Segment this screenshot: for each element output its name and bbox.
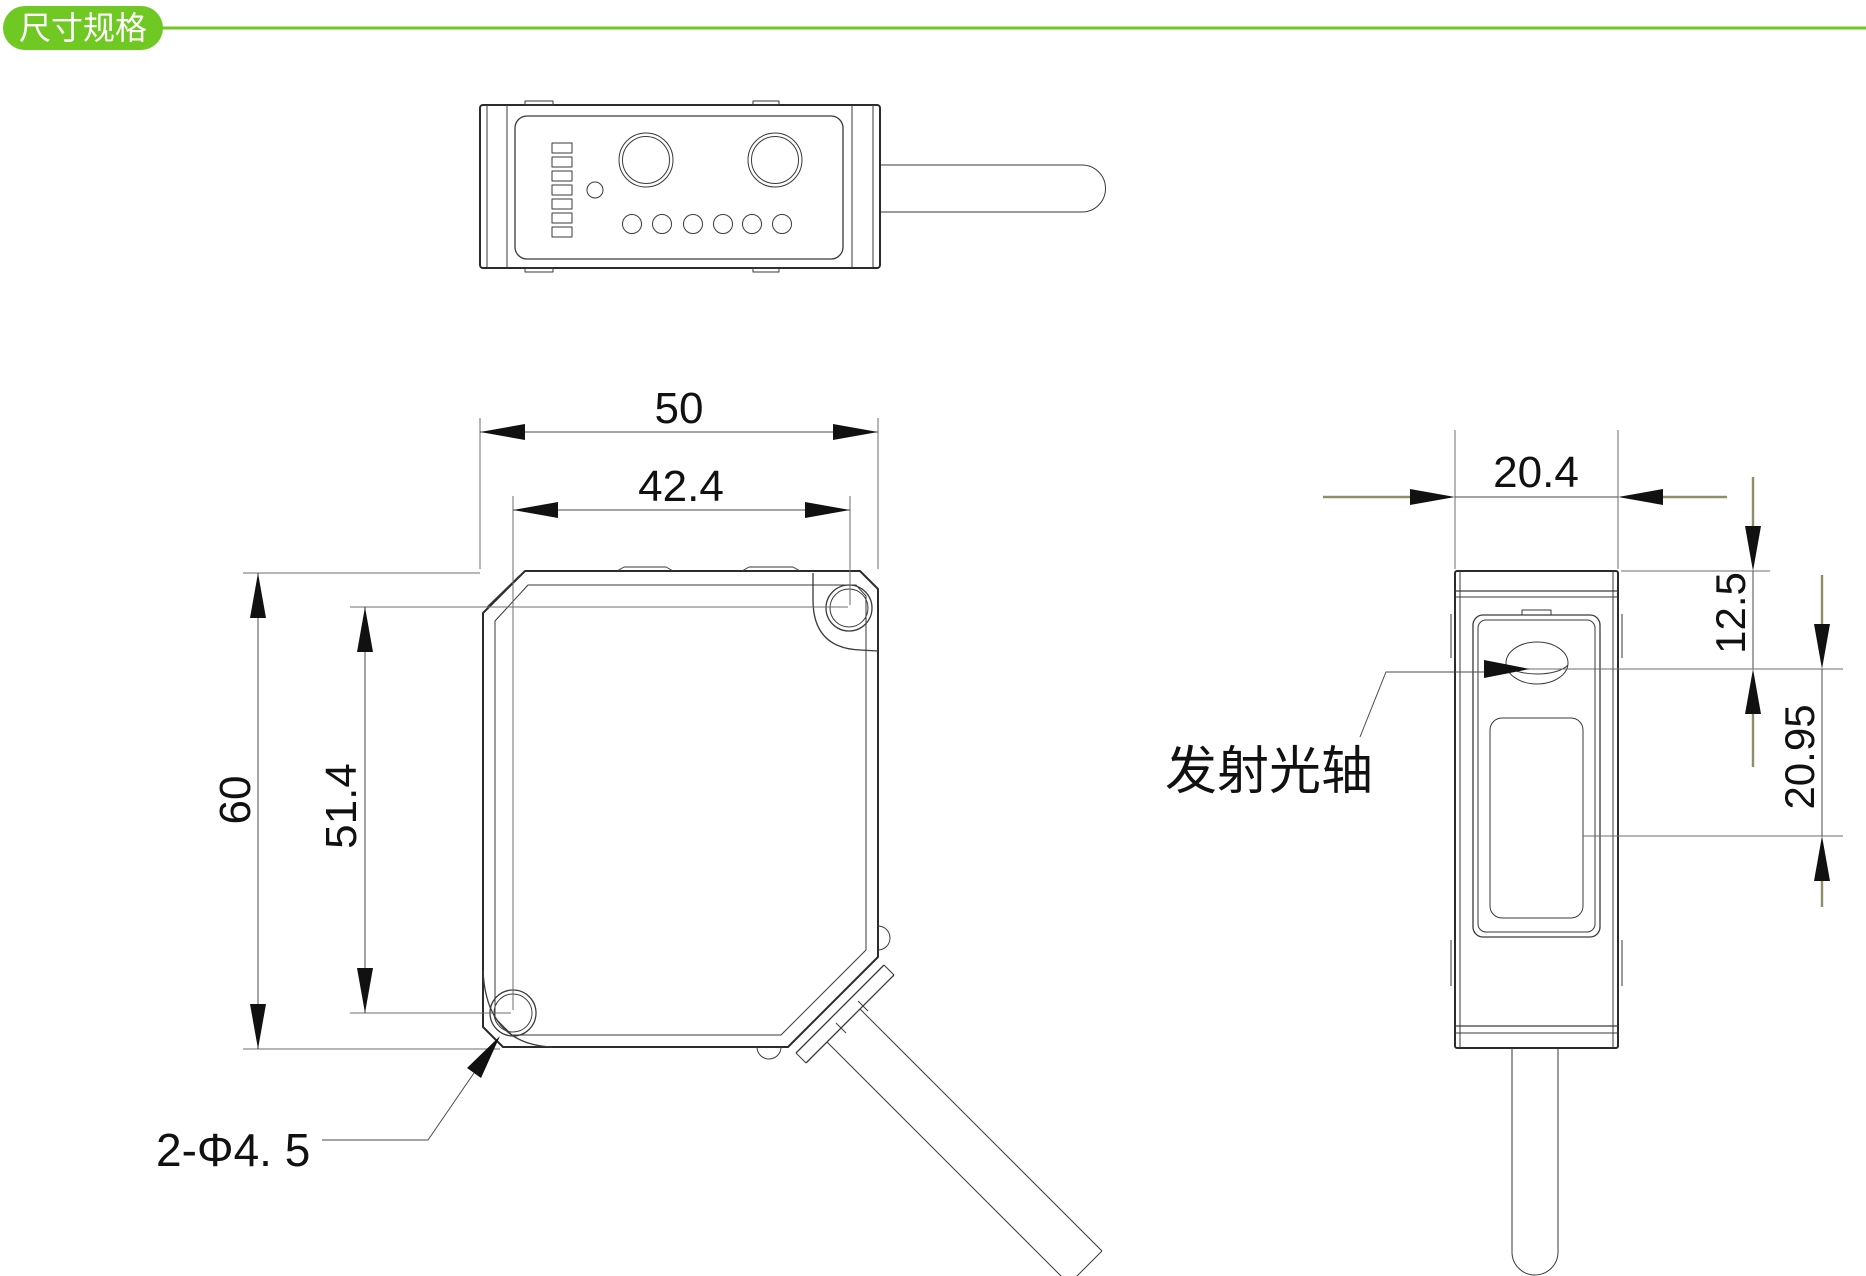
- dim-depth-value: 20.4: [1493, 448, 1579, 497]
- emitter-axis-callout: 发射光轴: [1165, 660, 1843, 801]
- badge-label: 尺寸规格: [19, 10, 147, 46]
- dim-depth: 20.4: [1323, 430, 1727, 569]
- dim-axis-to-window-value: 20.95: [1776, 704, 1823, 809]
- front-view: [483, 567, 1102, 1276]
- mounting-holes-callout: 2-Φ4. 5: [156, 1036, 500, 1176]
- emitter-axis-label: 发射光轴: [1165, 743, 1373, 801]
- dim-hole-spacing-x-value: 42.4: [638, 462, 724, 511]
- front-body-inner: [495, 585, 866, 1035]
- dim-outer-width-value: 50: [655, 384, 704, 433]
- side-view: [1451, 571, 1622, 1275]
- indicator-window: [1490, 718, 1583, 918]
- front-cable: [827, 1009, 1102, 1276]
- emitter-lens: [1506, 642, 1568, 684]
- dim-hole-spacing-y: 51.4: [317, 607, 848, 1013]
- top-body-outline: [480, 105, 880, 268]
- dim-hole-spacing-y-value: 51.4: [317, 763, 366, 849]
- side-body-outline: [1455, 571, 1618, 1048]
- dim-outer-height-value: 60: [211, 776, 260, 825]
- front-cable-gland: [796, 965, 894, 1063]
- button-row: [623, 215, 792, 234]
- header-badge: 尺寸规格: [3, 6, 1866, 50]
- side-clip-tabs: [1451, 614, 1622, 986]
- dimension-drawing: 尺寸规格: [0, 0, 1866, 1276]
- dim-axis-from-top: 12.5: [1621, 477, 1770, 767]
- indicator-bar-stack: [552, 143, 572, 237]
- mounting-holes-label: 2-Φ4. 5: [156, 1124, 310, 1176]
- adjuster-dial-left: [619, 133, 673, 187]
- top-face-panel: [515, 116, 843, 259]
- top-cable: [880, 165, 1106, 212]
- adjuster-dial-right: [748, 133, 802, 187]
- side-cable: [1512, 1048, 1558, 1275]
- status-led: [587, 182, 603, 198]
- front-body-outline: [483, 571, 878, 1047]
- top-view: [480, 101, 1106, 272]
- dim-hole-spacing-x: 42.4: [513, 462, 850, 1010]
- dim-axis-from-top-value: 12.5: [1707, 572, 1754, 654]
